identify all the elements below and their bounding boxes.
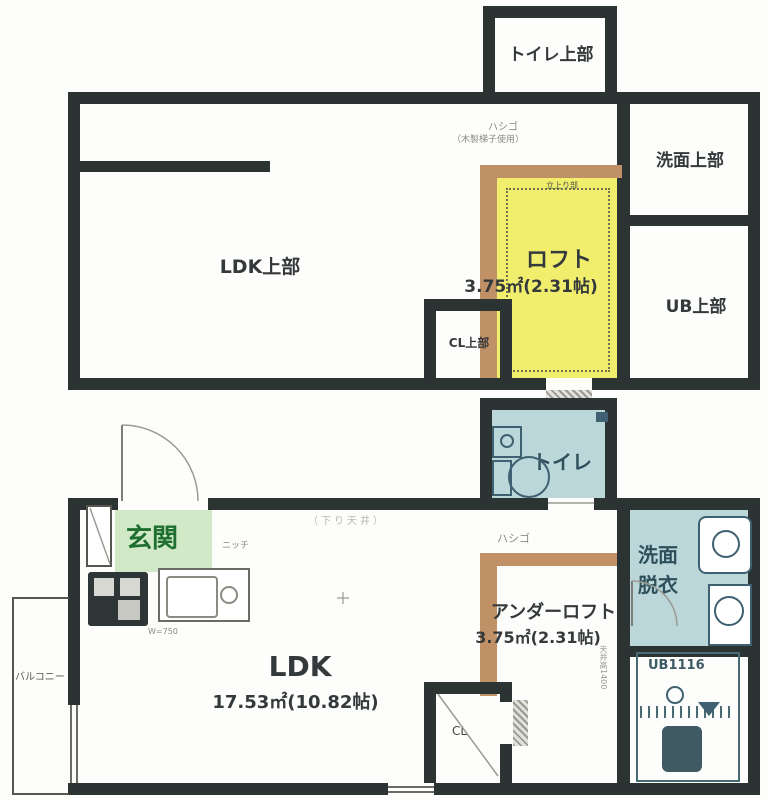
washroom-line2: 脱衣 [638, 573, 678, 597]
window-line [388, 791, 434, 793]
wall [483, 6, 495, 104]
room-label-underloft: アンダーロフト [486, 598, 621, 624]
ldk-area-text: 17.53㎡(10.82帖) [168, 688, 423, 714]
faucet-icon [220, 586, 238, 604]
wall [617, 498, 760, 510]
wall-opening [546, 378, 592, 390]
vent-icon [596, 412, 608, 422]
wall [630, 215, 748, 226]
window-line [388, 786, 434, 788]
room-label-ldk: LDK [245, 650, 355, 683]
niche-label: ニッチ [222, 538, 249, 551]
window-line [70, 705, 72, 783]
wall [68, 378, 760, 390]
wall-partial [80, 161, 270, 172]
entry-door-arc [122, 425, 198, 501]
window-line [76, 705, 78, 783]
room-label-loft: ロフト [500, 242, 618, 274]
room-label-entry: 玄関 [126, 518, 178, 555]
washroom-line1: 洗面 [638, 543, 678, 567]
room-label-balcony: バルコニー [15, 668, 65, 683]
room-label-closet-upper: CL上部 [430, 334, 508, 351]
ladder-note-upper: （木製梯子使用） [452, 132, 524, 145]
balcony [12, 597, 69, 795]
wall [483, 6, 617, 18]
stove-burner-icon [120, 578, 140, 596]
toilet-bowl-icon [508, 456, 550, 498]
wall [68, 92, 80, 390]
ceiling-note: （下り天井） [308, 512, 386, 527]
wall-divider [617, 104, 630, 378]
wall [424, 682, 512, 694]
floor-plan: トイレ上部 LDK上部 洗面上部 UB上部 ハシゴ （木製梯子使用） 立上り部 … [0, 0, 769, 800]
room-label-ldk-upper: LDK上部 [185, 252, 335, 279]
kitchen-note: W=750 [148, 627, 178, 636]
wall [424, 682, 436, 795]
toilet-basin-bowl-icon [500, 434, 514, 448]
underloft-wall-top [480, 553, 617, 566]
sink-icon [166, 576, 218, 618]
center-cross-mark [337, 592, 349, 604]
bottom-door-opening [388, 783, 434, 795]
room-label-closet: CL [452, 724, 467, 738]
wall [480, 398, 492, 510]
wall [500, 744, 512, 795]
stove-grill-icon [118, 600, 140, 620]
room-label-ub-upper: UB上部 [650, 292, 742, 317]
bath-faucet-icon [698, 702, 720, 716]
shoe-cabinet [86, 505, 112, 567]
room-label-washroom-upper: 洗面上部 [638, 146, 742, 171]
room-label-ub: UB1116 [648, 658, 705, 673]
shower-icon [666, 686, 684, 704]
wall [500, 682, 512, 702]
wall [68, 92, 760, 104]
ladder-label-upper: ハシゴ [488, 118, 518, 133]
loft-area-text: 3.75㎡(2.31帖) [440, 272, 622, 297]
stove-burner-icon [94, 578, 114, 596]
entry-door-opening [118, 498, 208, 510]
toilet-door-opening [548, 498, 594, 510]
wall [480, 398, 617, 410]
bathtub-icon [662, 726, 702, 772]
room-label-toilet-upper: トイレ上部 [495, 40, 607, 65]
underloft-note: 天井高1400 [598, 645, 609, 780]
wall [68, 510, 80, 705]
ladder-label-lower: ハシゴ [497, 530, 530, 546]
wall [748, 92, 760, 390]
washing-machine-drum-icon [714, 596, 744, 626]
closet-door-hatch [513, 700, 528, 746]
closet-door-line [438, 694, 498, 776]
loft-note: 立上り部 [546, 180, 578, 191]
room-label-washroom: 洗面脱衣 [638, 540, 678, 600]
ladder-wall-top [480, 165, 622, 178]
wall [424, 299, 512, 311]
washbasin-bowl-icon [712, 530, 740, 558]
